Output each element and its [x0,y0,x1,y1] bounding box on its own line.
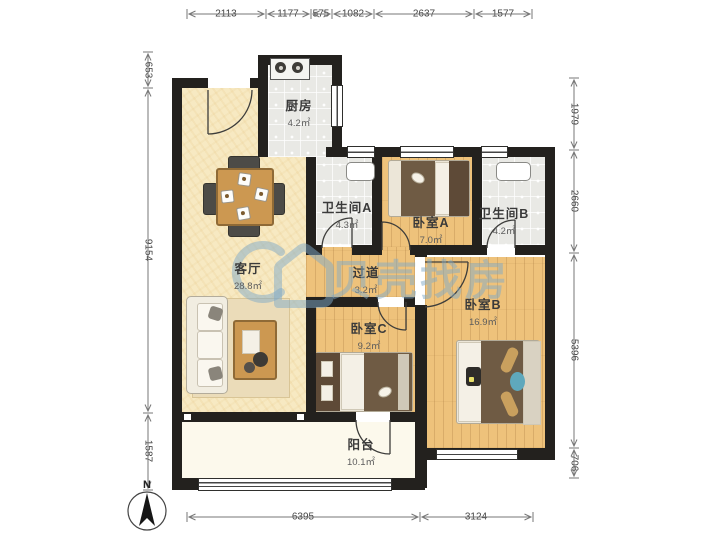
bedroom-b-window [436,449,518,460]
bedroom-a-window [400,146,454,158]
bathroom-a-basin [346,162,375,181]
room-name: 卫生间B [479,203,530,222]
room-label-bathroom-b: 卫生间B 4.2㎡ [479,203,530,237]
dim-right-4: 706 [569,453,580,474]
dim-top-1: 2113 [213,9,239,20]
room-area: 3.2㎡ [352,282,379,296]
balcony-floor [182,422,415,478]
compass-north-label: N [143,479,151,491]
room-label-bedroom-a: 卧室A 7.0㎡ [412,212,449,246]
room-area: 16.9㎡ [464,314,501,328]
room-label-bathroom-a: 卫生间A 4.3㎡ [322,197,373,231]
bathroom-a-window [347,146,375,158]
room-area: 4.3㎡ [322,217,373,231]
kitchen-window [331,85,343,127]
room-area: 28.8㎡ [234,278,262,292]
room-name: 客厅 [234,258,262,277]
dim-left-2: 9154 [143,237,154,263]
dim-bottom-1: 6395 [290,512,316,523]
room-area: 7.0㎡ [412,232,449,246]
dim-right-1: 1979 [569,101,580,127]
dim-right-2: 2660 [569,188,580,214]
wall-cap-1 [184,414,191,420]
wall-mid-2 [352,245,380,255]
room-label-balcony: 阳台 10.1㎡ [347,434,375,468]
room-area: 10.1㎡ [347,454,375,468]
bathroom-b-basin [496,162,531,181]
bed-c [315,352,413,412]
floor-plan: 贝壳找房 厨房 4.2㎡ 卫生间A 4.3㎡ 卧室A 7.0㎡ 卫生间B 4.2… [0,0,720,540]
stove [270,58,310,80]
sofa [186,296,228,394]
room-label-hallway: 过道 3.2㎡ [352,262,379,296]
dim-top-3: 575 [311,9,332,20]
dim-left-1: 653 [143,60,154,81]
room-label-bedroom-c: 卧室C 9.2㎡ [350,318,387,352]
room-label-living-room: 客厅 28.8㎡ [234,258,262,292]
bed-b [456,340,540,424]
compass-icon [128,492,166,530]
balcony-window [198,478,392,491]
room-label-kitchen: 厨房 4.2㎡ [285,95,312,129]
dim-top-5: 2637 [411,9,437,20]
wall-hall-bottom-b [404,297,415,307]
room-name: 卧室A [412,212,449,231]
room-name: 阳台 [347,434,375,453]
wall-living-balcony-a [182,412,356,422]
bed-a [388,160,470,217]
room-label-bedroom-b: 卧室B 16.9㎡ [464,294,501,328]
dining-table [216,168,274,226]
dim-top-6: 1577 [490,9,516,20]
room-name: 卧室B [464,294,501,313]
wall-living-balcony-b [390,412,415,422]
dim-bottom-2: 3124 [463,512,489,523]
coffee-table [233,320,277,380]
wall-hall-bedroom-b-upper [415,247,427,257]
room-area: 4.2㎡ [285,115,312,129]
wall-living-bedroom-c [306,297,316,412]
room-name: 卧室C [350,318,387,337]
wall-cap-2 [297,414,304,420]
room-area: 4.2㎡ [479,223,530,237]
wall-bathroom-a-left [306,157,316,255]
wall-top-left-a [172,78,208,88]
wall-left-outer [172,78,182,490]
wall-kitchen-left [258,55,268,157]
wall-hall-bottom-a [306,297,378,307]
dim-left-3: 1587 [143,438,154,464]
room-name: 卫生间A [322,197,373,216]
wall-hall-bedroom-b-lower [415,305,427,488]
room-name: 过道 [352,262,379,281]
dim-right-3: 5396 [569,337,580,363]
wall-mid-1 [306,245,322,255]
dim-top-2: 1177 [275,9,301,20]
room-name: 厨房 [285,95,312,114]
dim-top-4: 1082 [340,9,366,20]
room-area: 9.2㎡ [350,338,387,352]
bathroom-b-window [481,146,508,158]
wall-mid-4 [515,245,545,255]
wall-right-outer [545,147,555,460]
